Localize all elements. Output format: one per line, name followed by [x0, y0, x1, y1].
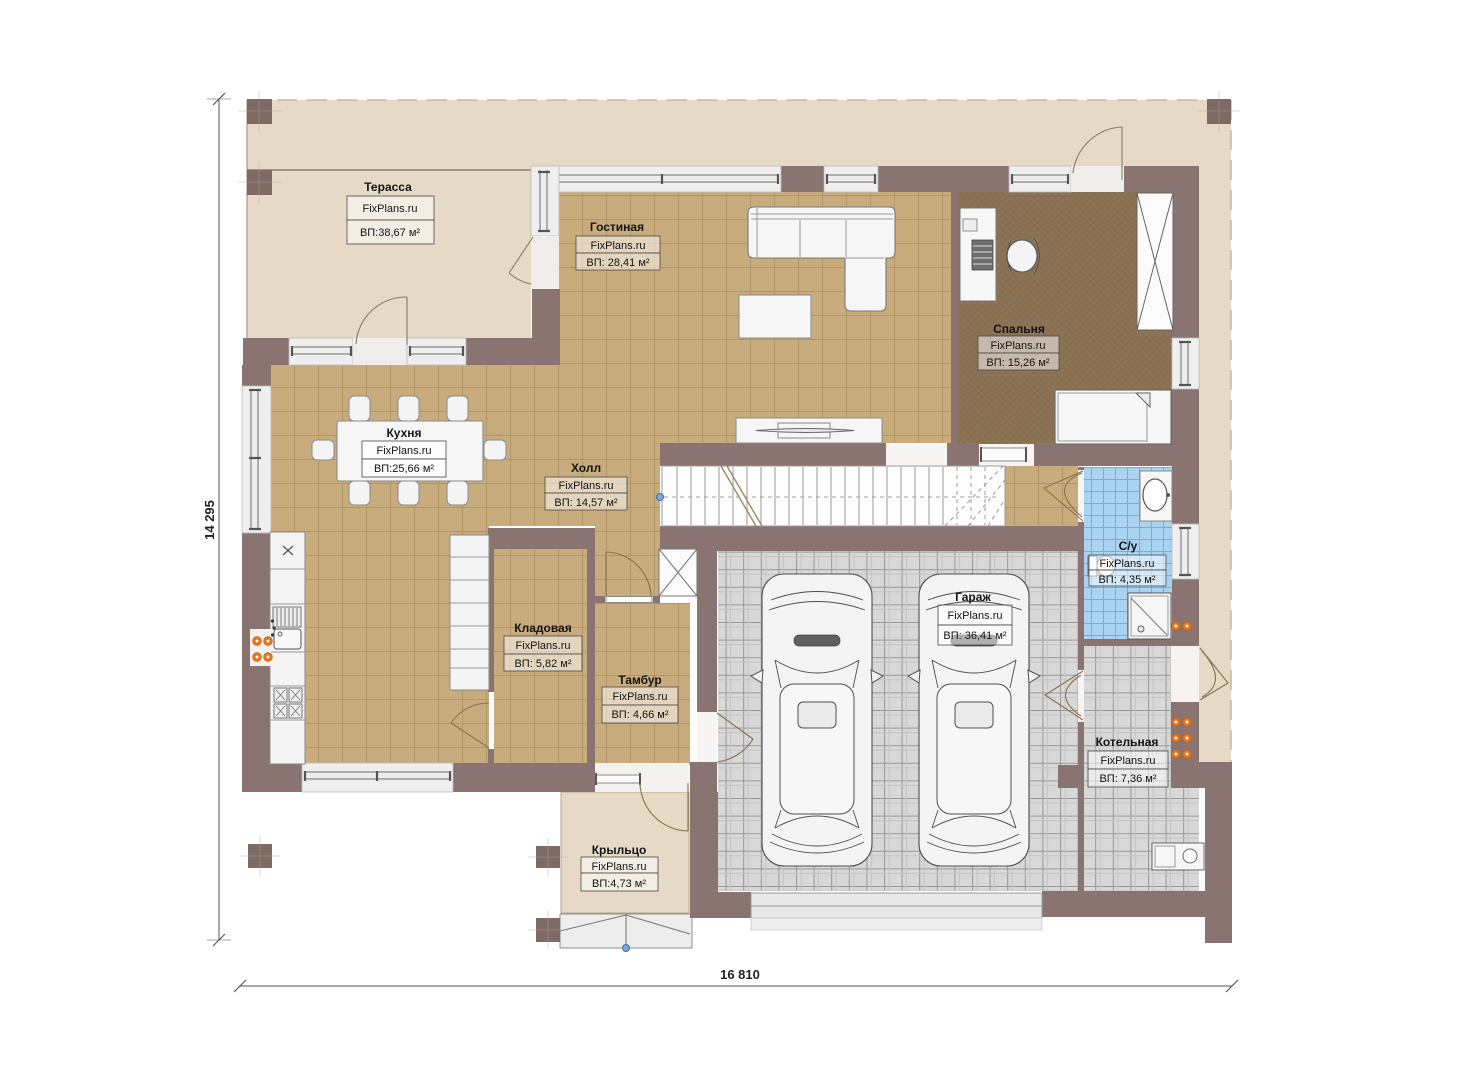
svg-text:FixPlans.ru: FixPlans.ru: [1100, 755, 1155, 767]
svg-text:ВП: 15,26 м²: ВП: 15,26 м²: [986, 357, 1050, 369]
svg-text:FixPlans.ru: FixPlans.ru: [590, 240, 645, 252]
svg-text:16 810: 16 810: [720, 967, 760, 982]
svg-text:FixPlans.ru: FixPlans.ru: [1099, 558, 1154, 570]
svg-text:14 295: 14 295: [202, 500, 217, 540]
svg-text:FixPlans.ru: FixPlans.ru: [362, 203, 417, 215]
svg-text:ВП:4,73 м²: ВП:4,73 м²: [592, 878, 646, 890]
svg-text:Холл: Холл: [571, 461, 601, 475]
svg-text:ВП: 14,57 м²: ВП: 14,57 м²: [554, 497, 618, 509]
svg-text:FixPlans.ru: FixPlans.ru: [612, 691, 667, 703]
svg-text:Тамбур: Тамбур: [618, 673, 662, 687]
svg-text:ВП: 4,66 м²: ВП: 4,66 м²: [611, 709, 668, 721]
svg-text:ВП: 4,35 м²: ВП: 4,35 м²: [1098, 574, 1155, 586]
svg-text:ВП: 36,41 м²: ВП: 36,41 м²: [943, 630, 1007, 642]
svg-text:ВП: 5,82 м²: ВП: 5,82 м²: [514, 658, 571, 670]
svg-text:Спальня: Спальня: [993, 322, 1045, 336]
svg-text:С/у: С/у: [1119, 539, 1138, 553]
svg-text:Гостиная: Гостиная: [590, 220, 644, 234]
svg-text:ВП: 28,41 м²: ВП: 28,41 м²: [586, 257, 650, 269]
svg-text:Котельная: Котельная: [1096, 735, 1159, 749]
svg-text:ВП:38,67 м²: ВП:38,67 м²: [360, 227, 420, 239]
svg-text:FixPlans.ru: FixPlans.ru: [515, 640, 570, 652]
svg-text:Гараж: Гараж: [955, 590, 991, 604]
svg-text:Кладовая: Кладовая: [514, 621, 571, 635]
svg-text:FixPlans.ru: FixPlans.ru: [376, 445, 431, 457]
svg-text:Кухня: Кухня: [386, 426, 421, 440]
svg-text:ВП:25,66 м²: ВП:25,66 м²: [374, 463, 434, 475]
svg-text:ВП: 7,36 м²: ВП: 7,36 м²: [1099, 773, 1156, 785]
svg-text:FixPlans.ru: FixPlans.ru: [558, 480, 613, 492]
svg-text:FixPlans.ru: FixPlans.ru: [947, 610, 1002, 622]
svg-text:Крыльцо: Крыльцо: [592, 843, 647, 857]
svg-text:FixPlans.ru: FixPlans.ru: [591, 861, 646, 873]
svg-text:Терасса: Терасса: [364, 180, 412, 194]
svg-text:FixPlans.ru: FixPlans.ru: [990, 340, 1045, 352]
